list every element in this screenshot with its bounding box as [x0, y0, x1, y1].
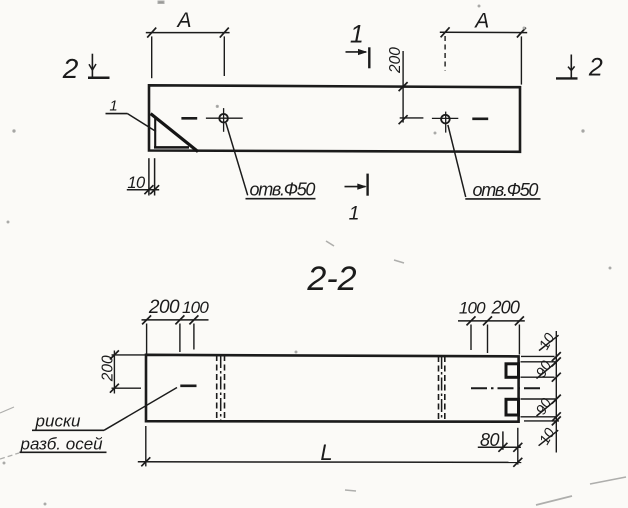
svg-text:риски: риски [35, 412, 81, 431]
svg-text:2: 2 [62, 53, 79, 84]
svg-text:отв.Ф50: отв.Ф50 [250, 180, 316, 200]
svg-text:200: 200 [490, 297, 519, 317]
svg-text:разб. осей: разб. осей [20, 435, 104, 454]
svg-text:2: 2 [588, 54, 603, 82]
svg-text:100: 100 [459, 298, 486, 317]
svg-text:1: 1 [350, 20, 364, 48]
svg-text:10: 10 [127, 174, 146, 192]
svg-text:2-2: 2-2 [306, 260, 356, 298]
svg-text:200: 200 [100, 355, 117, 382]
svg-text:отв.Ф50: отв.Ф50 [473, 180, 539, 200]
svg-text:200: 200 [148, 297, 180, 318]
svg-text:1: 1 [349, 203, 360, 225]
svg-text:A: A [175, 9, 191, 32]
svg-text:1: 1 [109, 98, 117, 115]
svg-text:L: L [320, 440, 332, 465]
svg-text:200: 200 [387, 47, 404, 74]
svg-text:A: A [473, 10, 489, 33]
svg-text:100: 100 [182, 298, 209, 317]
